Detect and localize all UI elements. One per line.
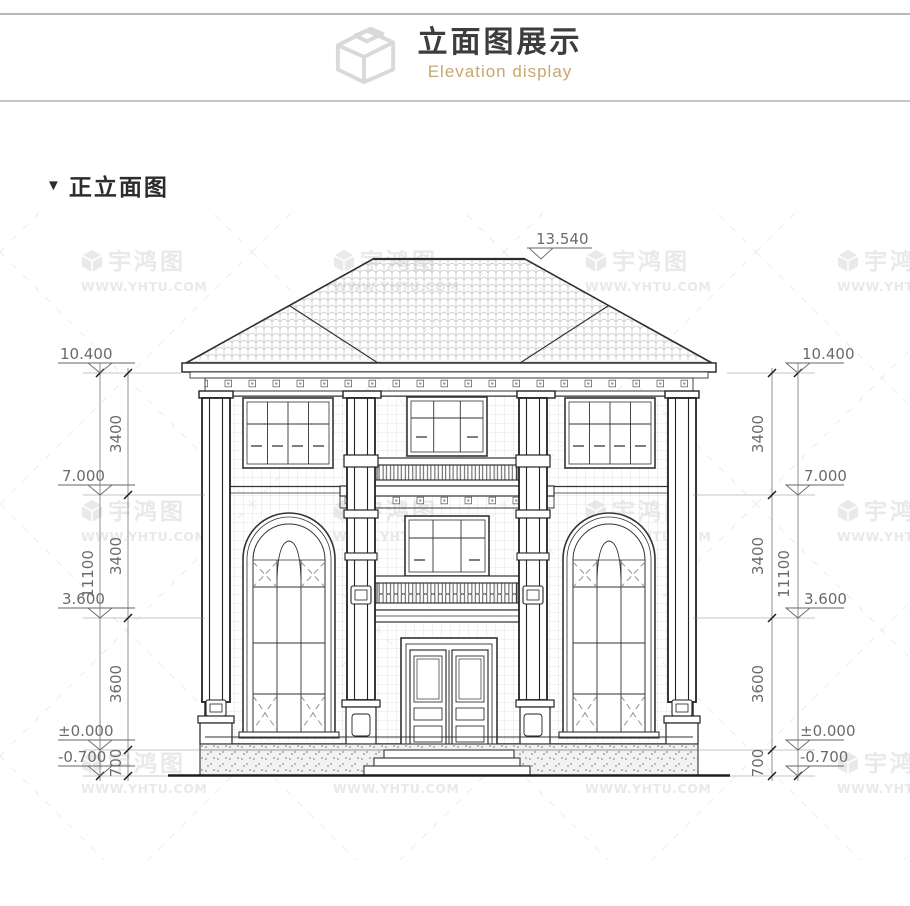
elevation-drawing: 宇鸿图 WWW.YHTU.COM — [0, 0, 910, 906]
pilaster-corner-left — [198, 391, 234, 744]
elevation-label-eave-left: 10.400 — [60, 345, 113, 363]
dim-total-left: 11100 — [79, 550, 97, 598]
elevation-label-floor2-right: 3.600 — [804, 590, 847, 608]
window-2f-center — [405, 516, 489, 576]
pilaster-center-left — [342, 391, 381, 744]
elevation-label-grade-right: -0.700 — [800, 748, 848, 766]
window-3f-right — [565, 398, 655, 468]
elevation-label-grade-left: -0.700 — [58, 748, 106, 766]
dim-3400-upper-left: 3400 — [107, 415, 125, 453]
elevation-label-zero-left: ±0.000 — [58, 722, 114, 740]
arched-window-right — [559, 513, 659, 738]
entrance-steps — [364, 750, 530, 775]
watermark — [837, 498, 910, 544]
dim-700-right: 700 — [749, 749, 767, 778]
window-3f-center — [407, 397, 487, 456]
dim-3600-right: 3600 — [749, 665, 767, 703]
dim-3400-upper-right: 3400 — [749, 415, 767, 453]
dim-700-left: 700 — [107, 749, 125, 778]
elevation-label-ridge: 13.540 — [536, 230, 589, 248]
dim-total-right: 11100 — [775, 550, 793, 598]
pilaster-corner-right — [664, 391, 700, 744]
dim-3400-lower-left: 3400 — [107, 537, 125, 575]
elevation-label-floor3-left: 7.000 — [62, 467, 105, 485]
elevation-label-zero-right: ±0.000 — [800, 722, 856, 740]
dim-3600-left: 3600 — [107, 665, 125, 703]
arched-window-left — [239, 513, 339, 738]
balcony-2f — [364, 576, 530, 622]
balcony-3f — [369, 458, 525, 486]
dim-3400-lower-right: 3400 — [749, 537, 767, 575]
window-3f-left — [243, 398, 333, 468]
elevation-label-eave-right: 10.400 — [802, 345, 855, 363]
watermark — [837, 248, 910, 294]
elevation-label-floor3-right: 7.000 — [804, 467, 847, 485]
entrance-door — [401, 638, 497, 750]
